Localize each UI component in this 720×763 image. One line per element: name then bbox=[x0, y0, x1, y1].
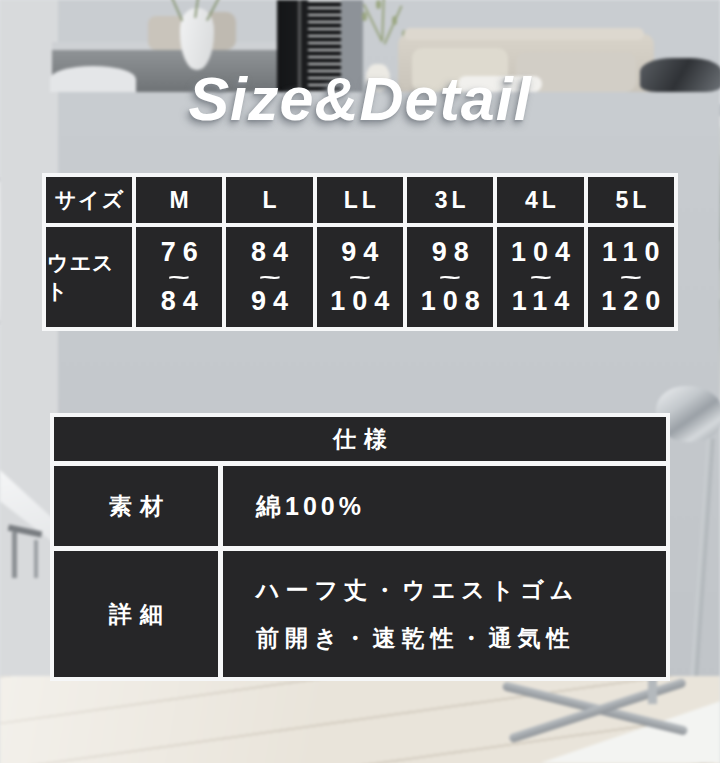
tilde-separator: ~ bbox=[529, 268, 551, 286]
details-line-1: ハーフ丈・ウエストゴム bbox=[256, 575, 579, 606]
bench-leg bbox=[34, 540, 38, 578]
size-table: サイズ M L LL 3L 4L 5L ウエスト 76 ~ 84 84 ~ 94… bbox=[42, 173, 678, 331]
waist-range-m: 76 ~ 84 bbox=[136, 227, 222, 327]
chair-base-pole bbox=[648, 678, 657, 704]
waist-max: 108 bbox=[414, 286, 487, 317]
size-col-header-4l: 4L bbox=[497, 177, 583, 223]
details-line-2: 前開き・速乾性・通気性 bbox=[256, 623, 576, 654]
waist-min: 110 bbox=[595, 237, 667, 268]
tilde-separator: ~ bbox=[439, 268, 461, 286]
size-col-header-5l: 5L bbox=[588, 177, 674, 223]
waist-max: 120 bbox=[594, 286, 667, 317]
sofa-top-cushions bbox=[404, 28, 644, 40]
waist-range-4l: 104 ~ 114 bbox=[497, 227, 583, 327]
spec-table: 仕様 素材 綿100% 詳細 ハーフ丈・ウエストゴム 前開き・速乾性・通気性 bbox=[50, 413, 670, 681]
spec-value-material: 綿100% bbox=[223, 466, 666, 546]
page-title: Size&Detail bbox=[0, 66, 720, 133]
waist-range-l: 84 ~ 94 bbox=[226, 227, 312, 327]
olive-leaf bbox=[376, 0, 381, 9]
tilde-separator: ~ bbox=[168, 268, 190, 286]
waist-min: 94 bbox=[334, 237, 385, 268]
waist-min: 76 bbox=[154, 237, 205, 268]
waist-min: 84 bbox=[244, 237, 295, 268]
waist-max: 94 bbox=[244, 286, 295, 317]
waist-row-label: ウエスト bbox=[46, 227, 132, 327]
size-col-header-3l: 3L bbox=[407, 177, 493, 223]
waist-max: 114 bbox=[505, 286, 577, 317]
olive-leaf bbox=[362, 12, 367, 21]
size-col-header-ll: LL bbox=[317, 177, 403, 223]
waist-max: 104 bbox=[323, 286, 396, 317]
olive-leaf bbox=[392, 16, 397, 25]
bench-leg bbox=[12, 532, 17, 578]
waist-range-3l: 98 ~ 108 bbox=[407, 227, 493, 327]
tilde-separator: ~ bbox=[349, 268, 371, 286]
waist-max: 84 bbox=[154, 286, 205, 317]
waist-min: 104 bbox=[504, 237, 577, 268]
spec-value-details: ハーフ丈・ウエストゴム 前開き・速乾性・通気性 bbox=[223, 551, 666, 677]
spec-label-details: 詳細 bbox=[54, 551, 218, 677]
material-text: 綿100% bbox=[256, 490, 365, 523]
waist-range-ll: 94 ~ 104 bbox=[317, 227, 403, 327]
spec-table-header: 仕様 bbox=[54, 417, 666, 461]
size-table-corner-header: サイズ bbox=[46, 177, 132, 223]
size-col-header-m: M bbox=[136, 177, 222, 223]
spec-label-material: 素材 bbox=[54, 466, 218, 546]
product-size-detail-image: Size&Detail サイズ M L LL 3L 4L 5L ウエスト 76 … bbox=[0, 0, 720, 763]
waist-min: 98 bbox=[425, 237, 476, 268]
waist-range-5l: 110 ~ 120 bbox=[588, 227, 674, 327]
tilde-separator: ~ bbox=[620, 268, 642, 286]
tilde-separator: ~ bbox=[258, 268, 280, 286]
size-col-header-l: L bbox=[226, 177, 312, 223]
